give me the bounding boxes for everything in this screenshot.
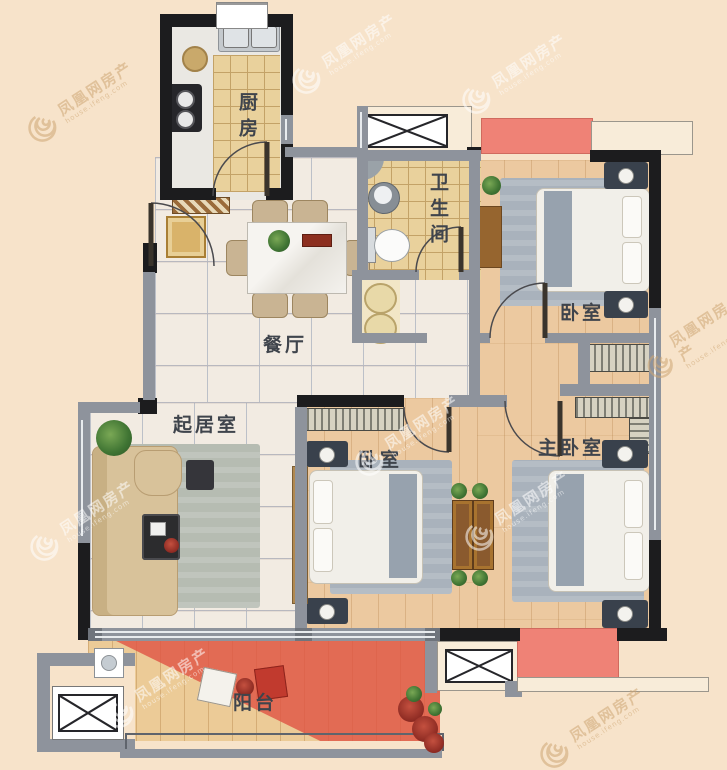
bedroom-middle-door-arc (404, 407, 449, 452)
room-label-balcony: 阳台 (233, 688, 277, 715)
room-label-bedroom-middle: 卧室 (358, 445, 402, 472)
room-label-living: 起居室 (173, 410, 239, 437)
room-label-bedroom-north: 卧室 (560, 298, 604, 325)
kitchen-door-arc (213, 142, 267, 196)
room-label-kitchen: 厨房 (234, 92, 261, 144)
entry-door-arc (151, 203, 214, 266)
bedroom-north-door-arc (490, 283, 545, 338)
room-label-dining: 餐厅 (263, 330, 307, 357)
door-arcs (0, 0, 727, 770)
room-label-master: 主卧室 (538, 433, 604, 460)
room-label-bathroom: 卫生间 (425, 172, 452, 250)
floor-plan: 厨房 餐厅 卫生间 卧室 起居室 卧室 主卧室 阳台 凤凰网房产house.if… (0, 0, 727, 770)
